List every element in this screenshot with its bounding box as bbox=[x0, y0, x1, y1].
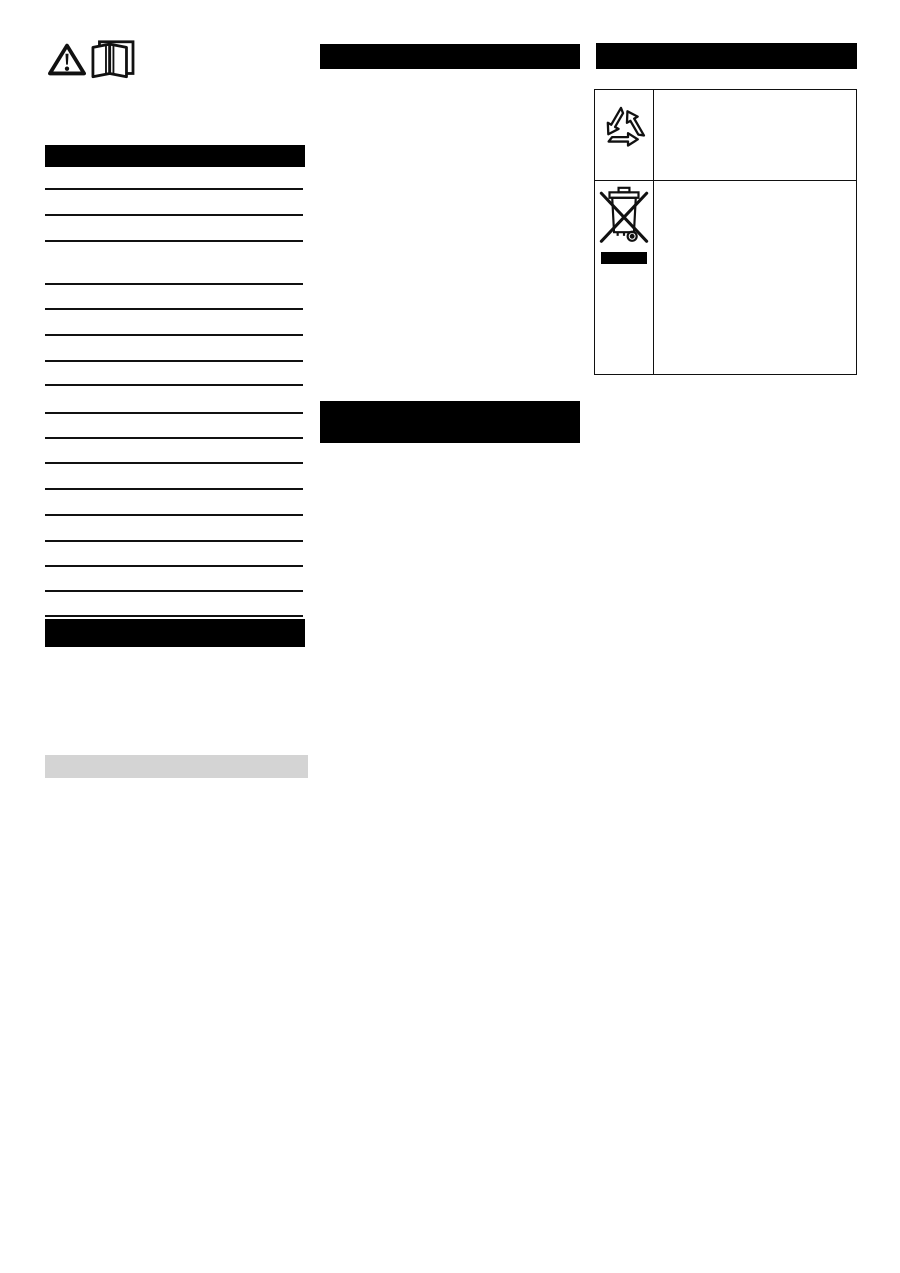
table-row-recycling bbox=[595, 90, 856, 181]
weee-symbol-cell bbox=[595, 181, 654, 374]
toc-rule-list bbox=[45, 170, 303, 620]
warning-triangle-icon bbox=[48, 42, 86, 77]
toc-rule-line bbox=[45, 590, 303, 592]
weee-description-cell bbox=[654, 181, 856, 374]
toc-rule-line bbox=[45, 488, 303, 490]
middle-section-heading-bar-top bbox=[320, 44, 580, 69]
toc-rule-line bbox=[45, 412, 303, 414]
crossed-out-wheelie-bin-icon bbox=[598, 186, 650, 244]
disposal-symbol-table bbox=[594, 89, 857, 375]
toc-rule-line bbox=[45, 308, 303, 310]
table-row-weee bbox=[595, 181, 856, 374]
right-section-heading-bar-top bbox=[596, 43, 857, 69]
toc-rule-line bbox=[45, 360, 303, 362]
toc-rule-line bbox=[45, 462, 303, 464]
toc-rule-line bbox=[45, 214, 303, 216]
left-section-heading-bar-top bbox=[45, 145, 305, 167]
manual-page bbox=[0, 0, 900, 1273]
recycling-symbol-cell bbox=[595, 90, 654, 180]
toc-rule-line bbox=[45, 240, 303, 242]
recycling-description-cell bbox=[654, 90, 856, 180]
gray-highlight-bar bbox=[45, 755, 308, 778]
open-book-icon bbox=[89, 39, 136, 80]
toc-rule-line bbox=[45, 565, 303, 567]
toc-rule-line bbox=[45, 615, 303, 617]
toc-rule-line bbox=[45, 514, 303, 516]
recycling-arrows-icon bbox=[598, 95, 651, 151]
left-section-heading-bar-bottom bbox=[45, 619, 305, 647]
toc-rule-line bbox=[45, 188, 303, 190]
toc-rule-line bbox=[45, 540, 303, 542]
toc-rule-line bbox=[45, 384, 303, 386]
middle-section-heading-bar-double bbox=[320, 401, 580, 443]
toc-rule-line bbox=[45, 437, 303, 439]
toc-rule-line bbox=[45, 334, 303, 336]
substance-black-bar bbox=[601, 252, 647, 264]
toc-rule-line bbox=[45, 283, 303, 285]
